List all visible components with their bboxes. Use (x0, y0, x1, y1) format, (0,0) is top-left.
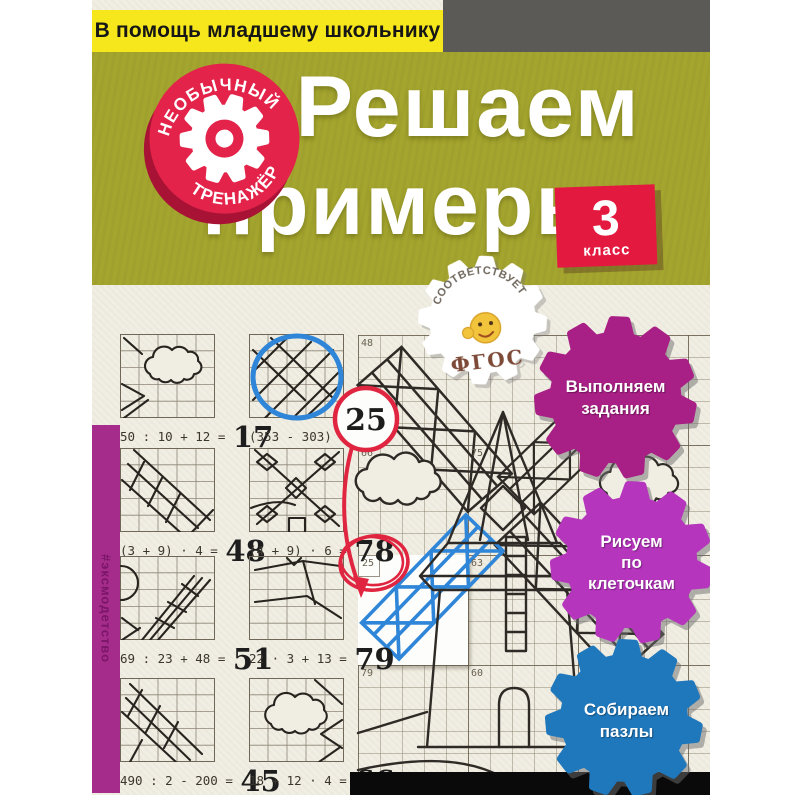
red-arrow (344, 447, 360, 588)
book-cover-page: В помощь младшему школьнику Решаем приме… (0, 0, 800, 800)
book-cover: В помощь младшему школьнику Решаем приме… (92, 0, 710, 795)
circled-answer-value: 25 (345, 403, 387, 438)
blue-pen-circle-overstroke (253, 336, 295, 395)
feature-badge-puzzles: Собираем пазлы (544, 638, 709, 795)
publisher-spine: #эксмодетство (92, 425, 120, 793)
feature-label: Собираем пазлы (544, 638, 709, 795)
publisher-hashtag: #эксмодетство (99, 554, 114, 663)
smiley-thumb (462, 327, 474, 339)
feature-badge-tasks: Выполняем задания (533, 315, 698, 480)
feature-label: Рисуем по клеточкам (549, 480, 710, 645)
feature-label: Выполняем задания (533, 315, 698, 480)
feature-badge-drawing: Рисуем по клеточкам (549, 480, 710, 645)
